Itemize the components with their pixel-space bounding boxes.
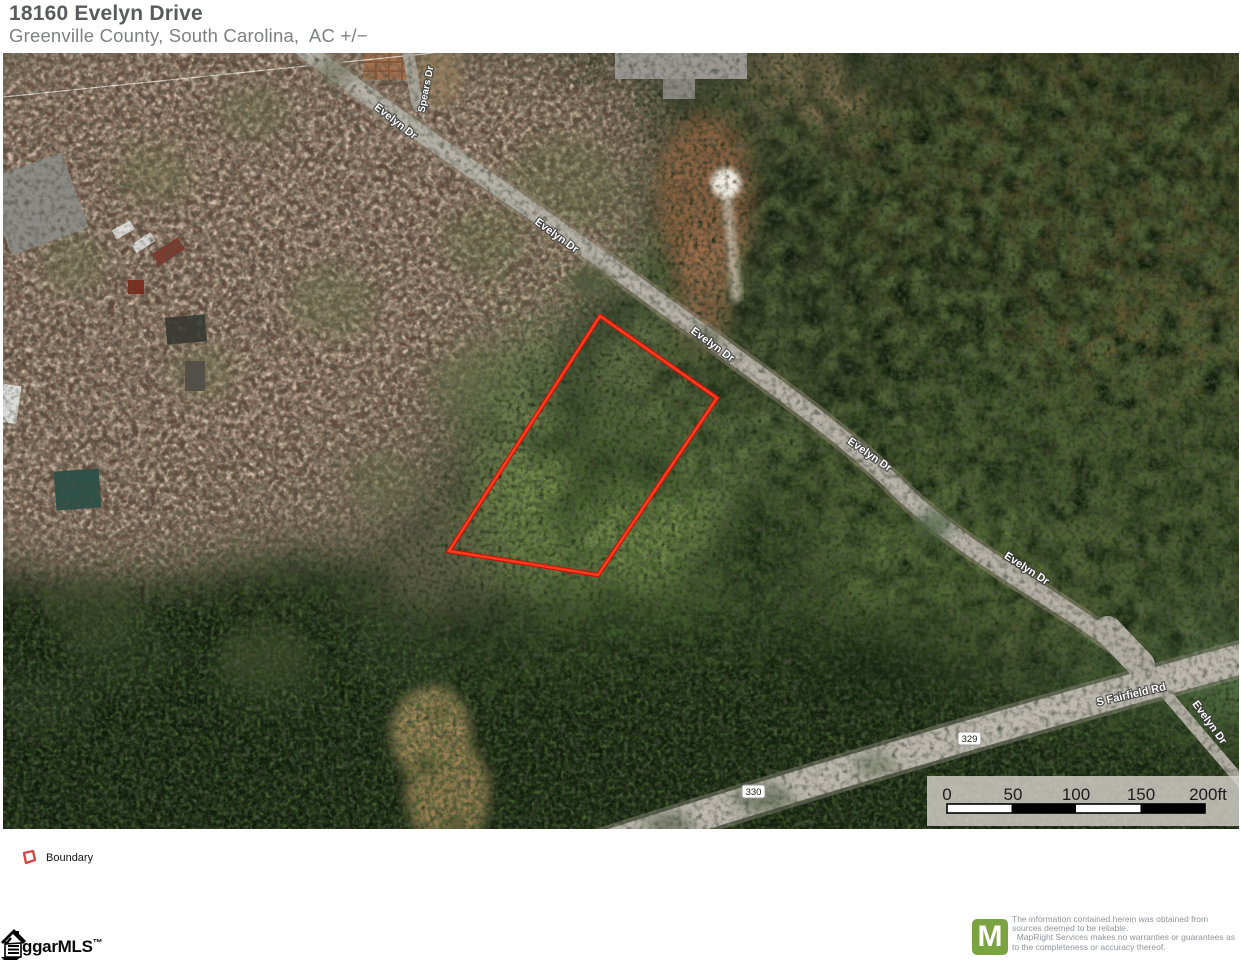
svg-text:100: 100 — [1062, 785, 1090, 804]
svg-text:0: 0 — [942, 785, 951, 804]
svg-text:150: 150 — [1127, 785, 1155, 804]
svg-text:50: 50 — [1004, 785, 1023, 804]
svg-text:330: 330 — [746, 787, 762, 798]
svg-text:200ft: 200ft — [1189, 785, 1227, 804]
svg-text:329: 329 — [962, 734, 978, 745]
